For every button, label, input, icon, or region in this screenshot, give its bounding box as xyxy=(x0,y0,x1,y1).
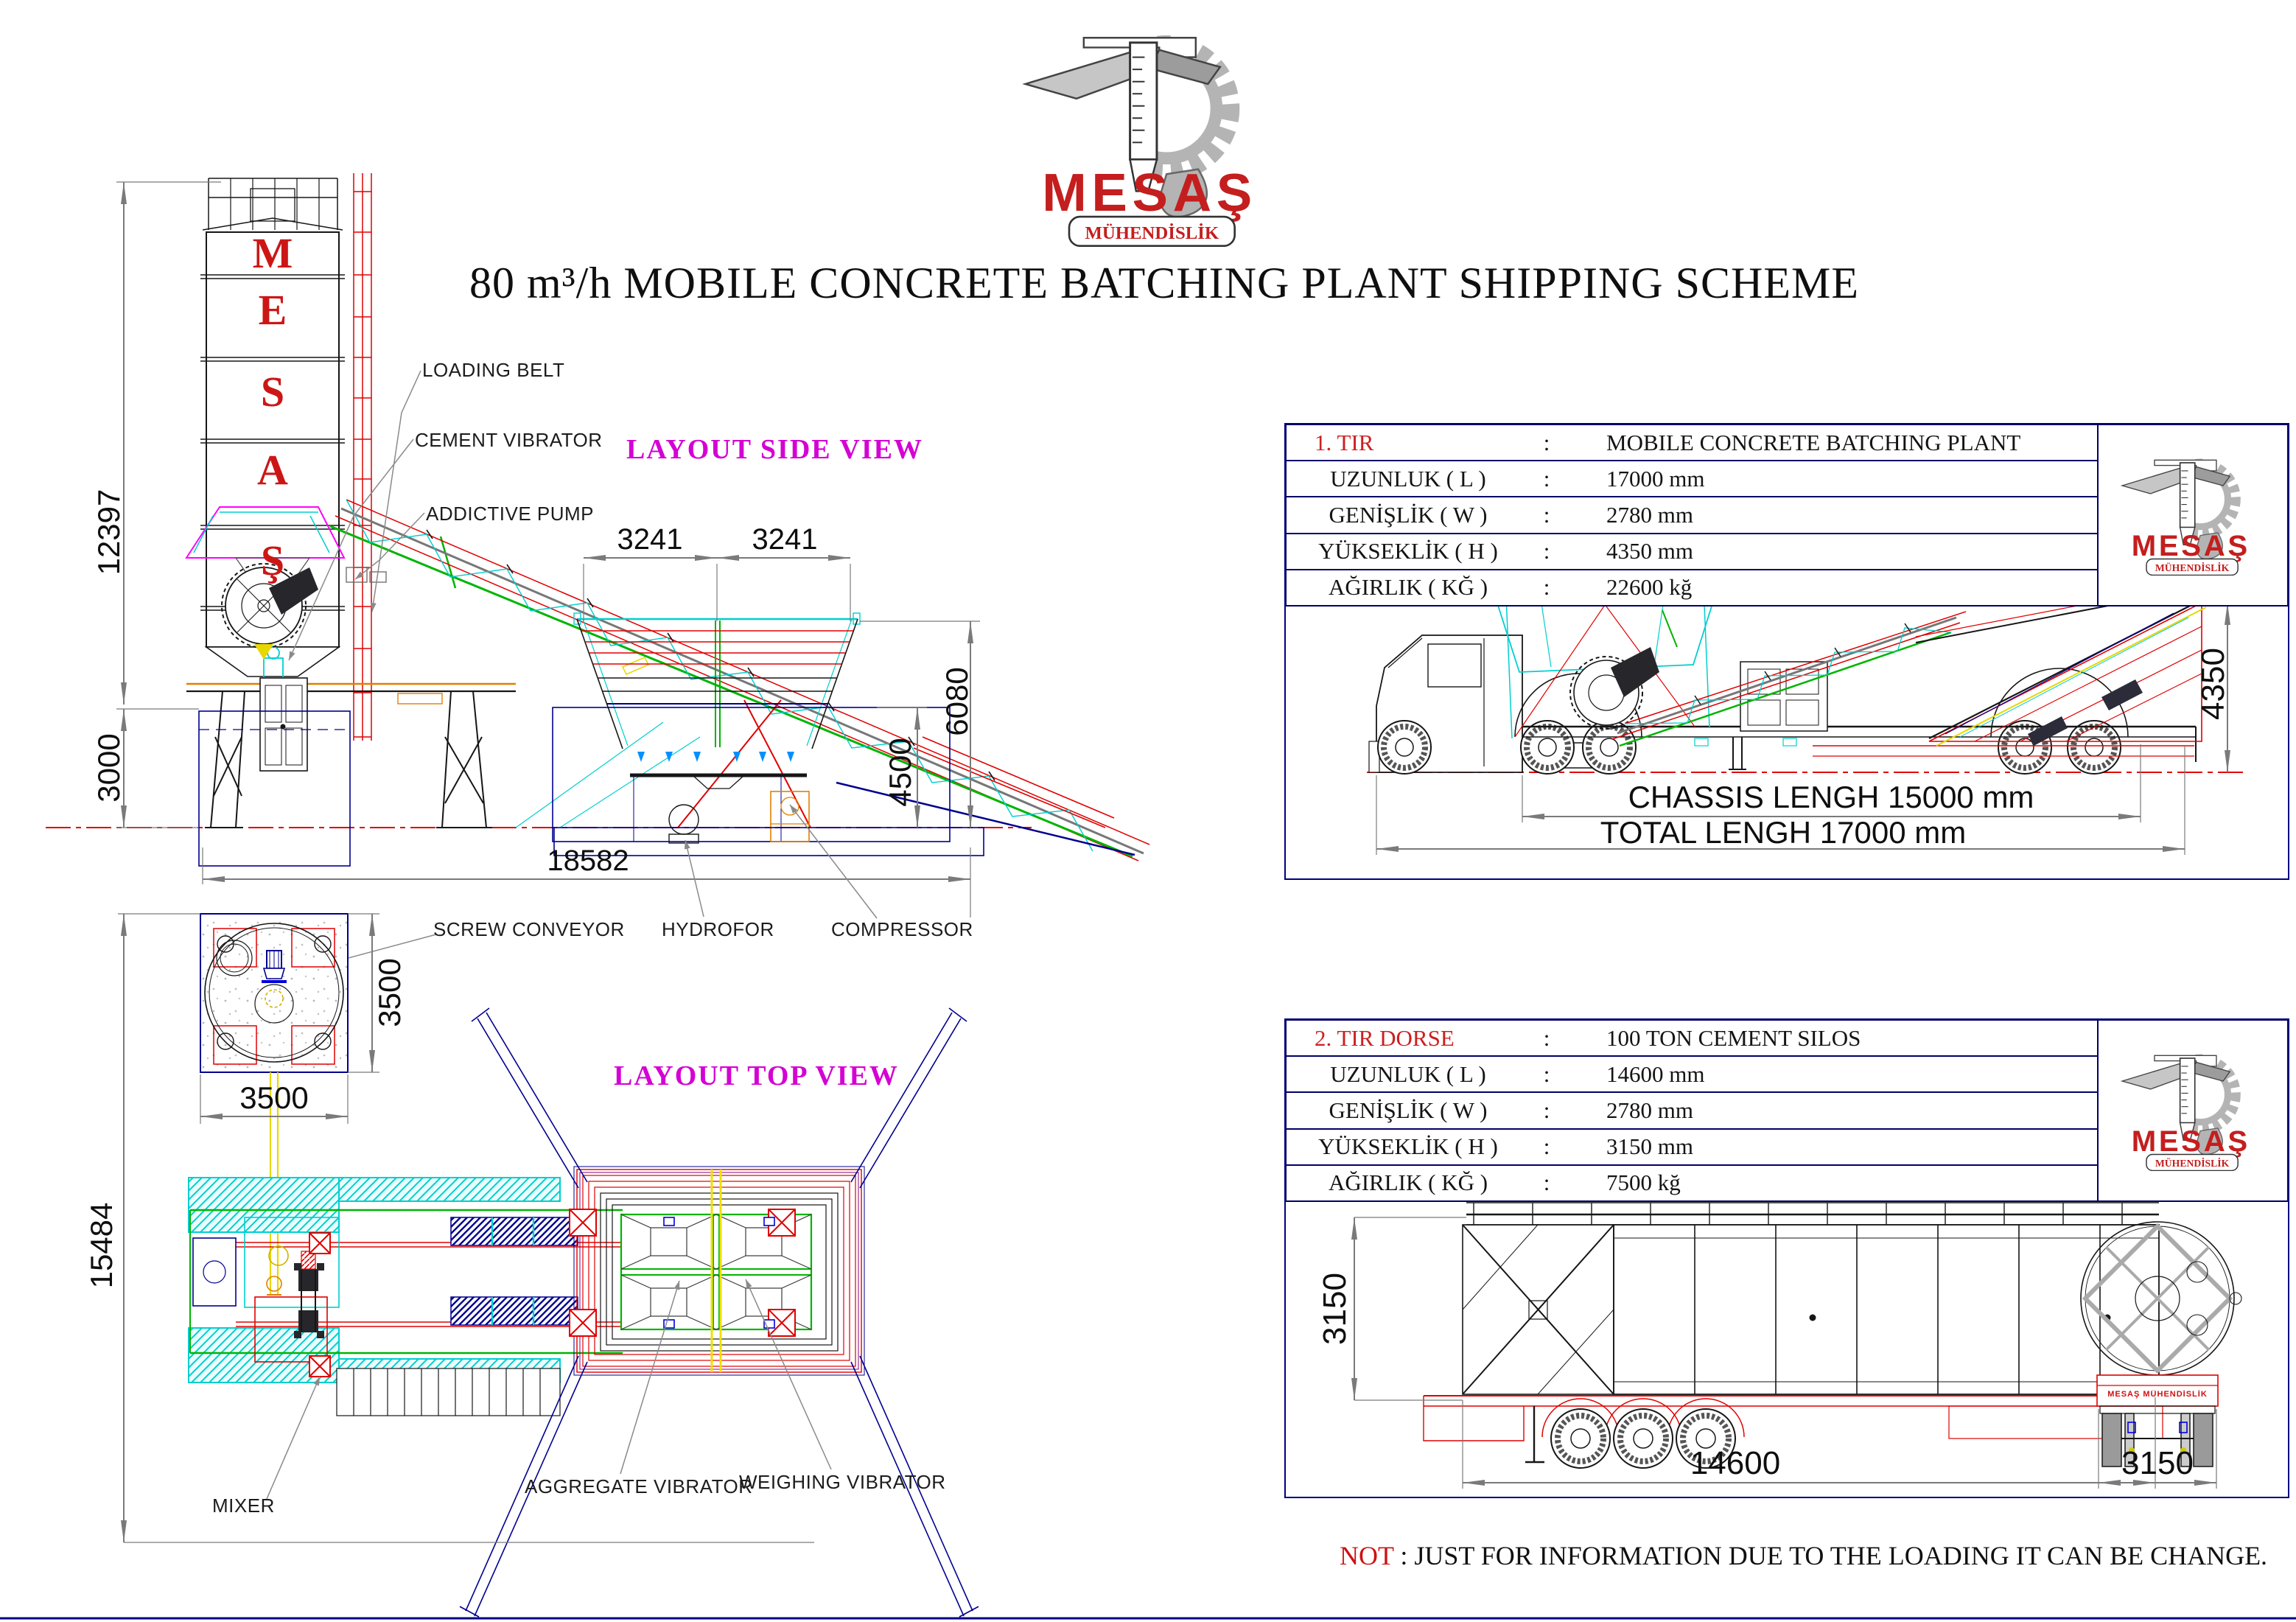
dim-bin-span-right: 3241 xyxy=(711,522,858,557)
mixer-top-view xyxy=(294,1251,324,1338)
table-row: 2. TIR DORSE : 100 TON CEMENT SILOS xyxy=(1287,1021,2097,1057)
hydrofor-label: HYDROFOR xyxy=(662,918,774,941)
bin-vibrator-marks xyxy=(570,1209,795,1336)
row-label: AĞIRLIK ( KĞ ) xyxy=(1287,574,1530,601)
silo-foundation-top xyxy=(200,914,348,1072)
row-separator: : xyxy=(1530,466,1564,492)
mixer-label: MIXER xyxy=(212,1495,275,1517)
dim-topview-length: 15484 xyxy=(84,1172,119,1319)
row-label: 2. TIR DORSE xyxy=(1287,1025,1530,1052)
dim-trailer-length: 14600 xyxy=(1662,1446,1809,1481)
silo-letter: E xyxy=(206,289,339,332)
brand-tagline: MÜHENDİSLİK xyxy=(2155,562,2230,573)
hydrofor-part xyxy=(669,805,699,843)
spec-table-1-rows: 1. TIR : MOBILE CONCRETE BATCHING PLANT … xyxy=(1287,425,2097,605)
company-logo: MESAŞ MÜHENDİSLİK xyxy=(2115,1050,2270,1171)
silo-letter: A xyxy=(206,449,339,492)
row-value: 2780 mm xyxy=(1564,502,2097,528)
mesas-logo-icon: MESAŞ MÜHENDİSLİK xyxy=(2115,455,2270,576)
shipping-scheme-sheet: MESAŞ MÜHENDİSLİK 80 m³/h MOBILE CONCRET… xyxy=(0,0,2296,1622)
footnote-body: : JUST FOR INFORMATION DUE TO THE LOADIN… xyxy=(1393,1541,2267,1570)
row-value: 17000 mm xyxy=(1564,466,2097,492)
company-logo: MESAŞ MÜHENDİSLİK xyxy=(1013,28,1293,247)
control-cabinet xyxy=(260,678,307,771)
dim-bin-top-height: 6080 xyxy=(939,628,975,775)
table-row: AĞIRLIK ( KĞ ) : 7500 kğ xyxy=(1287,1166,2097,1200)
loading-belt-label: LOADING BELT xyxy=(422,359,564,382)
silo-letter: Ş xyxy=(206,539,339,582)
mesas-logo-icon: MESAŞ MÜHENDİSLİK xyxy=(2115,1050,2270,1171)
company-logo: MESAŞ MÜHENDİSLİK xyxy=(2115,455,2270,576)
dim-silo-depth: 3500 xyxy=(372,919,407,1066)
row-value: 22600 kğ xyxy=(1564,574,2097,601)
brand-text: MESAŞ xyxy=(1042,163,1257,223)
row-separator: : xyxy=(1530,502,1564,528)
row-label: UZUNLUK ( L ) xyxy=(1287,1061,1530,1088)
table-row: AĞIRLIK ( KĞ ) : 22600 kğ xyxy=(1287,570,2097,605)
dim-bin-span-left: 3241 xyxy=(576,522,724,557)
table-logo-cell: MESAŞ MÜHENDİSLİK xyxy=(2097,425,2287,605)
dim-total-length: 18582 xyxy=(514,843,662,878)
row-label: YÜKSEKLİK ( H ) xyxy=(1287,1133,1530,1160)
mixer-platform xyxy=(186,684,516,828)
mesas-logo-icon: MESAŞ MÜHENDİSLİK xyxy=(1013,28,1293,247)
dim-silo-width: 3500 xyxy=(200,1080,348,1116)
row-label: GENİŞLİK ( W ) xyxy=(1287,502,1530,528)
row-value: 100 TON CEMENT SILOS xyxy=(1564,1025,2097,1052)
dim-total-truck-length: TOTAL LENGH 17000 mm xyxy=(1562,817,2004,849)
row-separator: : xyxy=(1530,574,1564,601)
row-label: YÜKSEKLİK ( H ) xyxy=(1287,538,1530,564)
row-separator: : xyxy=(1530,1025,1564,1052)
table-row: YÜKSEKLİK ( H ) : 4350 mm xyxy=(1287,534,2097,570)
compressor-part xyxy=(771,791,809,842)
spec-table-2-rows: 2. TIR DORSE : 100 TON CEMENT SILOS UZUN… xyxy=(1287,1021,2097,1200)
row-label: 1. TIR xyxy=(1287,430,1530,456)
brand-tagline: MÜHENDİSLİK xyxy=(1085,223,1219,243)
brand-tagline: MÜHENDİSLİK xyxy=(2155,1157,2230,1169)
dim-trailer-height: 3150 xyxy=(1317,1235,1353,1382)
row-label: GENİŞLİK ( W ) xyxy=(1287,1097,1530,1124)
row-value: 3150 mm xyxy=(1564,1133,2097,1160)
brand-text: MESAŞ xyxy=(2132,1125,2250,1158)
dim-silo-height: 12397 xyxy=(91,458,127,606)
table-row: GENİŞLİK ( W ) : 2780 mm xyxy=(1287,1093,2097,1129)
row-value: MOBILE CONCRETE BATCHING PLANT xyxy=(1564,430,2097,456)
screw-conveyor-label: SCREW CONVEYOR xyxy=(433,918,625,941)
row-separator: : xyxy=(1530,430,1564,456)
table-logo-cell: MESAŞ MÜHENDİSLİK xyxy=(2097,1021,2287,1200)
cement-vibrator-label: CEMENT VIBRATOR xyxy=(415,429,603,452)
table-row: 1. TIR : MOBILE CONCRETE BATCHING PLANT xyxy=(1287,425,2097,461)
row-separator: : xyxy=(1530,1061,1564,1088)
dim-truck-height: 4350 xyxy=(2196,610,2231,758)
plant-top-view xyxy=(189,1178,623,1416)
dim-bin-height: 4500 xyxy=(883,699,918,846)
addictive-pump-label: ADDICTIVE PUMP xyxy=(426,503,594,525)
compressor-label: COMPRESSOR xyxy=(831,918,973,941)
row-separator: : xyxy=(1530,1170,1564,1196)
aggregate-vibrator-label: AGGREGATE VIBRATOR xyxy=(525,1475,753,1498)
row-value: 7500 kğ xyxy=(1564,1170,2097,1196)
row-label: AĞIRLIK ( KĞ ) xyxy=(1287,1170,1530,1196)
table-row: UZUNLUK ( L ) : 14600 mm xyxy=(1287,1057,2097,1093)
row-value: 4350 mm xyxy=(1564,538,2097,564)
side-view-heading: LAYOUT SIDE VIEW xyxy=(626,433,847,466)
weighing-vibrator-label: WEIGHING VIBRATOR xyxy=(739,1471,946,1494)
row-value: 14600 mm xyxy=(1564,1061,2097,1088)
row-separator: : xyxy=(1530,1097,1564,1124)
table-row: GENİŞLİK ( W ) : 2780 mm xyxy=(1287,497,2097,534)
footnote: NOT : JUST FOR INFORMATION DUE TO THE LO… xyxy=(1340,1540,2267,1571)
steps-grid xyxy=(337,1368,560,1416)
row-separator: : xyxy=(1530,1133,1564,1160)
spec-table-2: 2. TIR DORSE : 100 TON CEMENT SILOS UZUN… xyxy=(1285,1019,2289,1202)
row-separator: : xyxy=(1530,538,1564,564)
silo-on-trailer xyxy=(1463,1203,2159,1394)
silo-letter: M xyxy=(206,232,339,275)
dim-trailer-width: 3150 xyxy=(2084,1446,2231,1481)
truck-load-bins xyxy=(1916,595,2206,746)
table-row: UZUNLUK ( L ) : 17000 mm xyxy=(1287,461,2097,497)
dim-base-height: 3000 xyxy=(91,694,127,842)
bin-discharge-arrows xyxy=(637,752,794,762)
table-row: YÜKSEKLİK ( H ) : 3150 mm xyxy=(1287,1130,2097,1166)
row-label: UZUNLUK ( L ) xyxy=(1287,466,1530,492)
top-view-heading: LAYOUT TOP VIEW xyxy=(614,1060,835,1092)
trailer-mudflap-text: MESAŞ MÜHENDİSLİK xyxy=(2101,1390,2213,1399)
sheet-title: 80 m³/h MOBILE CONCRETE BATCHING PLANT S… xyxy=(0,258,2296,309)
row-value: 2780 mm xyxy=(1564,1097,2097,1124)
brand-text: MESAŞ xyxy=(2132,529,2250,562)
dim-chassis-length: CHASSIS LENGH 15000 mm xyxy=(1610,781,2052,814)
spec-table-1: 1. TIR : MOBILE CONCRETE BATCHING PLANT … xyxy=(1285,424,2289,606)
silo-letter: S xyxy=(206,371,339,413)
footnote-prefix: NOT xyxy=(1340,1541,1393,1570)
